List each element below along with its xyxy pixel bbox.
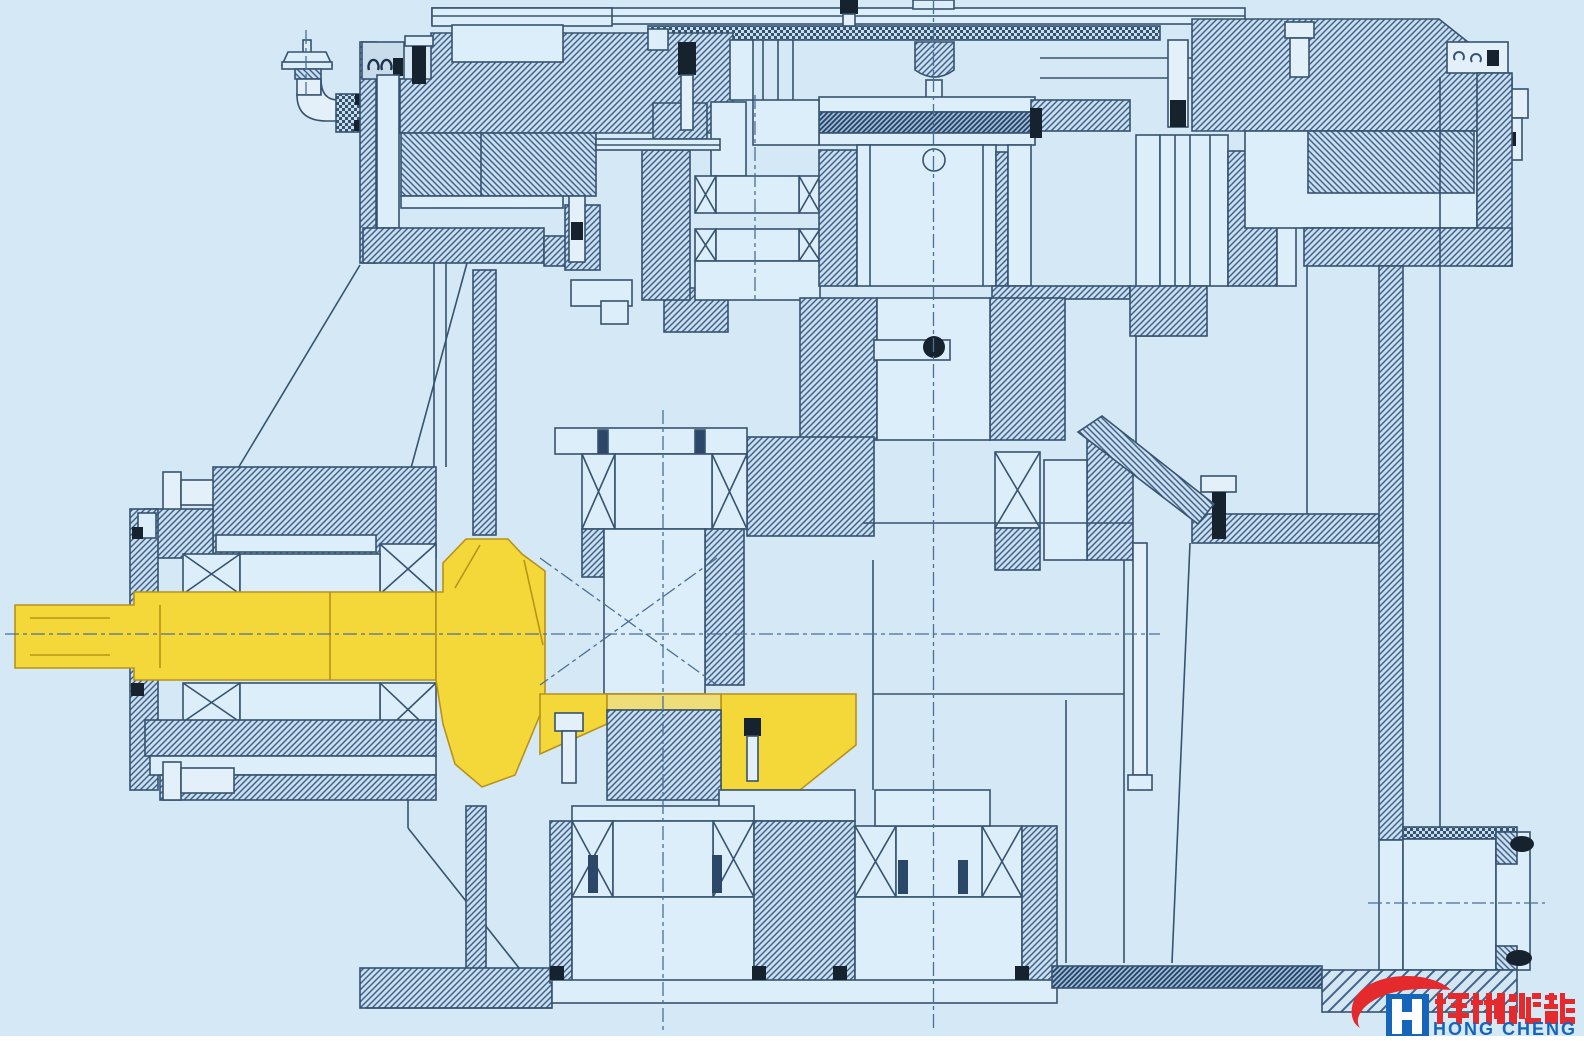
- svg-text:HONG CHENG: HONG CHENG: [1433, 1019, 1577, 1036]
